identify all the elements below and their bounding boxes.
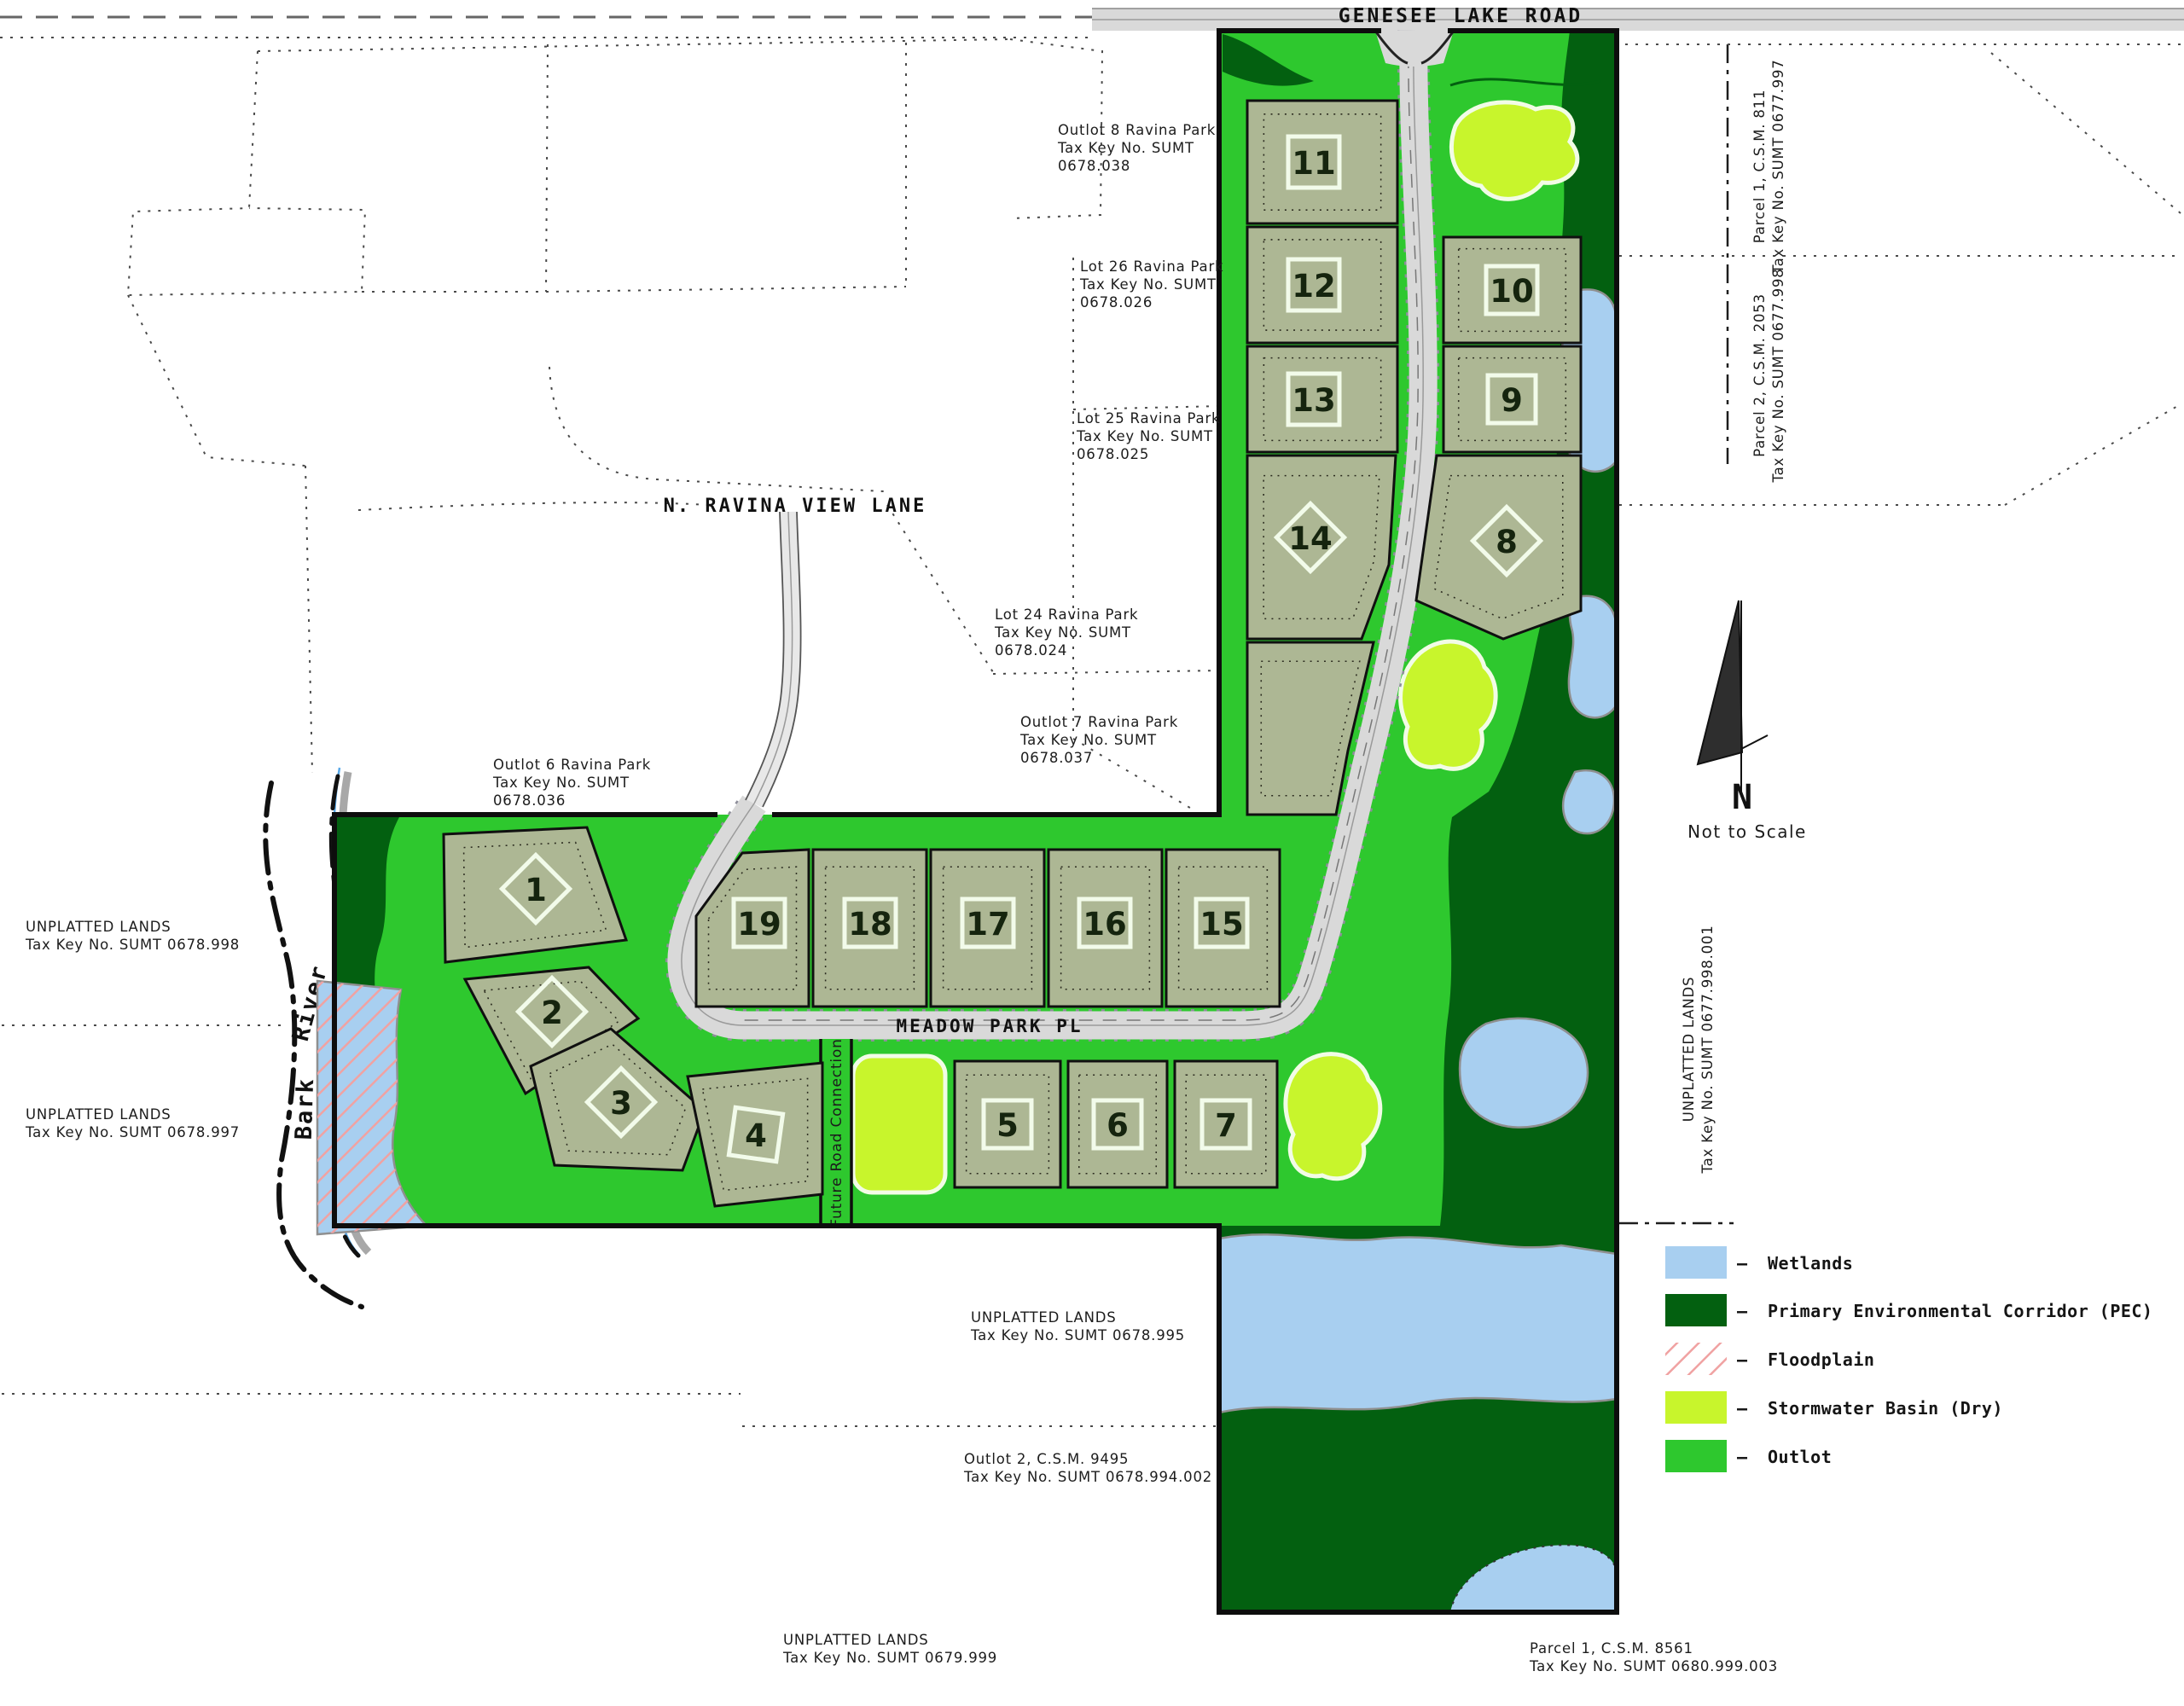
annotation-line: UNPLATTED LANDS — [26, 919, 171, 935]
annotation-line: UNPLATTED LANDS — [783, 1632, 929, 1648]
river-name-lower: Bark — [291, 1077, 320, 1140]
annotation-line: 0678.025 — [1077, 446, 1149, 462]
annotation-line: Tax Key No. SUMT 0678.997 — [25, 1124, 240, 1140]
annotation-line: Lot 24 Ravina Park — [995, 606, 1138, 623]
annotation-line: Tax Key No. SUMT 0678.995 — [970, 1327, 1185, 1343]
meadow-park-pl-label: MEADOW PARK PL — [896, 1016, 1083, 1036]
plat-map: River Bark — [0, 0, 2184, 1706]
lot-19-number: 19 — [737, 906, 781, 943]
annotation-line: Tax Key No. SUMT — [492, 775, 630, 791]
annotation-line: 0678.026 — [1080, 294, 1153, 310]
road-junction-flare — [1375, 31, 1454, 67]
stormwater-basin-label: Stormwater Basin (Dry) — [1768, 1398, 2003, 1419]
annotation-line: Tax Key No. SUMT 0680.999.003 — [1529, 1658, 1778, 1674]
annotation-line: UNPLATTED LANDS — [1681, 977, 1697, 1123]
annotation-line: Tax Key No. SUMT — [1057, 140, 1194, 156]
outlot-label: Outlot — [1768, 1447, 1832, 1467]
annotation-line: Tax Key No. SUMT — [1079, 276, 1217, 293]
annotation-line: Tax Key No. SUMT 0677.998.001 — [1699, 925, 1716, 1174]
annotation-line: Parcel 2, C.S.M. 2053 — [1751, 293, 1768, 457]
lot-11-number: 11 — [1292, 145, 1336, 182]
floodplain-swatch — [1665, 1343, 1727, 1375]
future-road-connection: Future Road Connection — [821, 1038, 851, 1227]
annotation-line: Parcel 1, C.S.M. 8561 — [1530, 1640, 1693, 1657]
lot-7-number: 7 — [1215, 1107, 1237, 1144]
lot-9-number: 9 — [1501, 382, 1523, 419]
annotation-line: Tax Key No. SUMT 0679.999 — [782, 1650, 997, 1666]
pec-swatch — [1665, 1294, 1727, 1326]
annotation-line: 0678.038 — [1058, 158, 1130, 174]
annotation-line: Tax Key No. SUMT — [1019, 732, 1157, 748]
annotation-line: 0678.037 — [1020, 750, 1093, 766]
annotation-line: Parcel 1, C.S.M. 811 — [1751, 90, 1768, 243]
lot-1-number: 1 — [525, 872, 547, 908]
n-ravina-view-lane-label: N. RAVINA VIEW LANE — [664, 496, 927, 517]
lot-18-number: 18 — [848, 906, 892, 943]
north-label: N — [1732, 778, 1752, 817]
annotation-line: UNPLATTED LANDS — [971, 1309, 1117, 1326]
outlot-swatch — [1665, 1440, 1727, 1472]
future-road-connection-label: Future Road Connection — [828, 1038, 845, 1227]
lot-17-number: 17 — [966, 906, 1010, 943]
annotation-line: 0678.024 — [995, 642, 1067, 659]
wetland-east-2 — [1569, 596, 1617, 717]
legend-separator: – — [1737, 1253, 1748, 1274]
annotation-line: Tax Key No. SUMT 0677.997 — [1770, 59, 1786, 274]
annotation-line: Tax Key No. SUMT — [1076, 428, 1213, 444]
annotation-line: Outlot 7 Ravina Park — [1020, 714, 1178, 730]
lot-5-number: 5 — [996, 1107, 1019, 1144]
annotation-line: Outlot 2, C.S.M. 9495 — [964, 1451, 1129, 1467]
wetlands-label: Wetlands — [1768, 1253, 1853, 1274]
lot-13-number: 13 — [1292, 382, 1336, 419]
annotation-line: Lot 25 Ravina Park — [1077, 410, 1220, 426]
basin-south-rect — [853, 1056, 945, 1192]
pec-label: Primary Environmental Corridor (PEC) — [1768, 1301, 2152, 1321]
annotation-line: 0678.036 — [493, 792, 566, 809]
basin-mid — [1401, 641, 1496, 769]
floodplain-label: Floodplain — [1768, 1349, 1874, 1370]
legend-separator: – — [1737, 1398, 1748, 1419]
annotation-line: Tax Key No. SUMT — [994, 624, 1131, 641]
lot-3-number: 3 — [610, 1085, 632, 1122]
annotation-line: Tax Key No. SUMT 0678.994.002 — [963, 1469, 1212, 1485]
legend-separator: – — [1737, 1349, 1748, 1370]
legend-separator: – — [1737, 1447, 1748, 1467]
annotation-line: UNPLATTED LANDS — [26, 1106, 171, 1123]
annotation-line: Outlot 8 Ravina Park — [1058, 122, 1216, 138]
lot-10-number: 10 — [1490, 273, 1534, 310]
annotation-line: Lot 26 Ravina Park — [1080, 258, 1223, 275]
genesee-lake-road-label: GENESEE LAKE ROAD — [1339, 5, 1583, 27]
wetland-pond — [1460, 1018, 1588, 1128]
wetlands-swatch — [1665, 1246, 1727, 1279]
annotation-line: Tax Key No. SUMT 0678.998 — [25, 937, 240, 953]
lot-2-number: 2 — [541, 995, 563, 1031]
lot-14-number: 14 — [1288, 520, 1333, 557]
annotation-line: Tax Key No. SUMT 0677.998 — [1770, 268, 1786, 483]
not-to-scale-label: Not to Scale — [1687, 821, 1807, 842]
stormwater-basin-swatch — [1665, 1391, 1727, 1424]
lot-12-number: 12 — [1292, 268, 1336, 305]
legend-separator: – — [1737, 1301, 1748, 1321]
lot-15-number: 15 — [1199, 906, 1244, 943]
wetland-east-3 — [1563, 770, 1614, 833]
lot-6-number: 6 — [1107, 1107, 1129, 1144]
lot-16-number: 16 — [1083, 906, 1127, 943]
lot-8-number: 8 — [1496, 524, 1518, 560]
annotation-line: Outlot 6 Ravina Park — [493, 757, 651, 773]
wetland-large-south — [1219, 1234, 1617, 1413]
lot-4-number: 4 — [745, 1117, 767, 1154]
